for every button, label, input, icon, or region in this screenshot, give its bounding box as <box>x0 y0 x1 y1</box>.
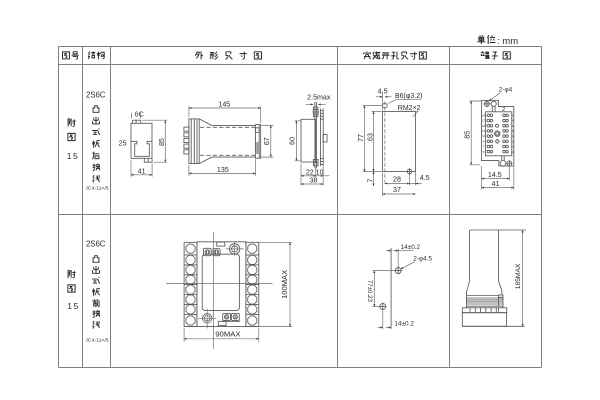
svg-text:60: 60 <box>289 137 297 145</box>
svg-text:10: 10 <box>316 168 324 176</box>
svg-text:85: 85 <box>463 131 471 139</box>
svg-text:2.5max: 2.5max <box>307 93 331 101</box>
svg-text:4.5: 4.5 <box>378 87 388 95</box>
svg-text:2: 2 <box>502 107 505 113</box>
svg-text:28: 28 <box>393 176 401 184</box>
svg-text:15: 15 <box>67 151 80 161</box>
svg-text:135: 135 <box>217 166 229 174</box>
svg-text:2-φ4.5: 2-φ4.5 <box>413 255 432 262</box>
svg-text:2-φ4: 2-φ4 <box>499 87 513 94</box>
svg-text:63: 63 <box>367 133 375 141</box>
svg-text:37: 37 <box>393 186 401 194</box>
svg-text:JCX-11A/5: JCX-11A/5 <box>85 185 109 191</box>
svg-text:67: 67 <box>263 137 271 145</box>
svg-text:85: 85 <box>158 138 166 146</box>
svg-text:14±0.2: 14±0.2 <box>401 244 421 251</box>
svg-text:145: 145 <box>218 101 230 109</box>
svg-text:22: 22 <box>306 168 314 176</box>
svg-text:2S6C: 2S6C <box>86 240 106 249</box>
svg-text:14±0.2: 14±0.2 <box>394 320 414 327</box>
svg-text:77±0.23: 77±0.23 <box>366 280 373 303</box>
svg-text:7: 7 <box>366 179 374 183</box>
svg-text:90MAX: 90MAX <box>215 330 240 339</box>
svg-text:100MAX: 100MAX <box>280 270 289 299</box>
svg-text:B6(φ3.2): B6(φ3.2) <box>395 93 423 100</box>
svg-text:15: 15 <box>67 301 80 311</box>
svg-text:38: 38 <box>309 177 317 185</box>
svg-text:25: 25 <box>119 139 127 147</box>
svg-text:2S6C: 2S6C <box>86 91 106 100</box>
svg-text:77: 77 <box>357 134 365 142</box>
svg-text:6C: 6C <box>135 111 144 119</box>
svg-text:14.5: 14.5 <box>488 171 502 179</box>
svg-text:JCX-11A/5: JCX-11A/5 <box>85 337 109 343</box>
svg-text:185MAX: 185MAX <box>515 263 522 289</box>
svg-text:4.5: 4.5 <box>420 174 430 182</box>
svg-text:41: 41 <box>492 180 500 188</box>
svg-text:41: 41 <box>138 168 146 176</box>
svg-text:: mm: : mm <box>497 36 518 47</box>
